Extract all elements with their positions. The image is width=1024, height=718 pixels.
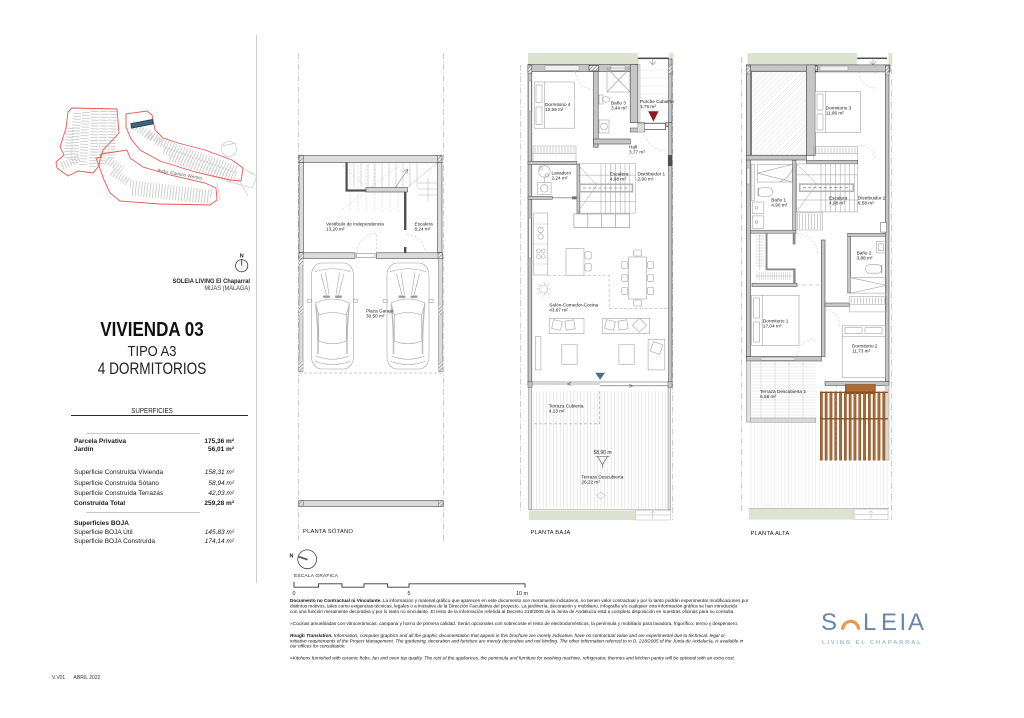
svg-text:43,67 m²: 43,67 m² bbox=[549, 308, 568, 313]
svg-text:PLANTA ALTA: PLANTA ALTA bbox=[751, 531, 790, 537]
svg-text:6,58 m²: 6,58 m² bbox=[760, 394, 776, 399]
svg-text:4,98 m²: 4,98 m² bbox=[829, 201, 845, 206]
svg-text:3,75 m²: 3,75 m² bbox=[640, 104, 656, 109]
svg-text:0: 0 bbox=[293, 591, 296, 597]
svg-text:10 m: 10 m bbox=[516, 591, 528, 597]
svg-text:PLANTA BAJA: PLANTA BAJA bbox=[531, 530, 571, 536]
svg-text:N: N bbox=[240, 253, 244, 259]
svg-text:30,50 m²: 30,50 m² bbox=[366, 314, 385, 319]
svg-text:A: A bbox=[908, 609, 924, 636]
svg-text:26,22 m²: 26,22 m² bbox=[581, 480, 600, 485]
svg-text:E: E bbox=[881, 609, 897, 636]
svg-text:4,13 m²: 4,13 m² bbox=[549, 409, 565, 414]
svg-text:I: I bbox=[900, 609, 907, 636]
svg-text:4,90 m²: 4,90 m² bbox=[771, 203, 787, 208]
svg-text:S: S bbox=[821, 609, 837, 636]
svg-text:11,73 m²: 11,73 m² bbox=[852, 349, 871, 354]
svg-text:PLANTA SÓTANO: PLANTA SÓTANO bbox=[303, 528, 353, 535]
svg-text:10,59 m²: 10,59 m² bbox=[545, 107, 564, 112]
svg-text:4,98 m²: 4,98 m² bbox=[610, 177, 626, 182]
svg-text:LIVING EL CHAPARRAL: LIVING EL CHAPARRAL bbox=[822, 640, 922, 646]
svg-text:8,24 m²: 8,24 m² bbox=[415, 227, 431, 232]
svg-text:58,90 m: 58,90 m bbox=[593, 450, 611, 456]
svg-text:3,77 m²: 3,77 m² bbox=[629, 150, 645, 155]
svg-text:3,88 m²: 3,88 m² bbox=[857, 256, 873, 261]
svg-text:2,24 m²: 2,24 m² bbox=[552, 176, 568, 181]
svg-text:3,44 m²: 3,44 m² bbox=[611, 106, 627, 111]
svg-text:Avda. Camino Werner: Avda. Camino Werner bbox=[157, 168, 204, 181]
svg-text:17,04 m²: 17,04 m² bbox=[763, 324, 782, 329]
svg-text:N: N bbox=[290, 554, 294, 560]
svg-text:6,58 m²: 6,58 m² bbox=[858, 201, 874, 206]
svg-text:L: L bbox=[863, 609, 876, 636]
svg-text:11,96 m²: 11,96 m² bbox=[826, 111, 845, 116]
svg-text:5: 5 bbox=[408, 591, 411, 597]
svg-text:13,20 m²: 13,20 m² bbox=[326, 227, 345, 232]
svg-text:2,90 m²: 2,90 m² bbox=[638, 177, 654, 182]
